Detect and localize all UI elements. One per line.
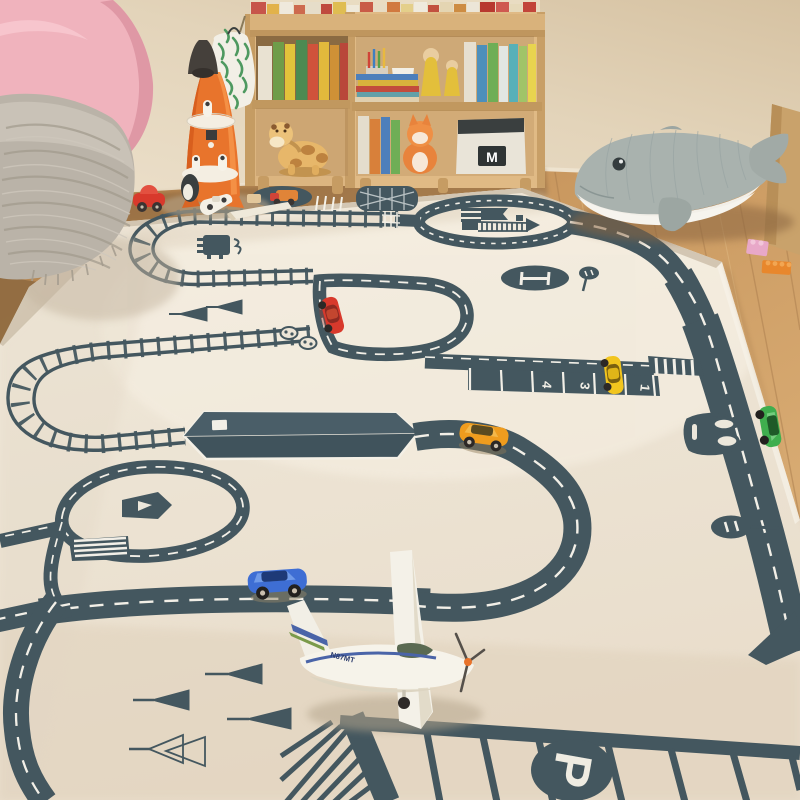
svg-text:M: M xyxy=(486,149,498,165)
